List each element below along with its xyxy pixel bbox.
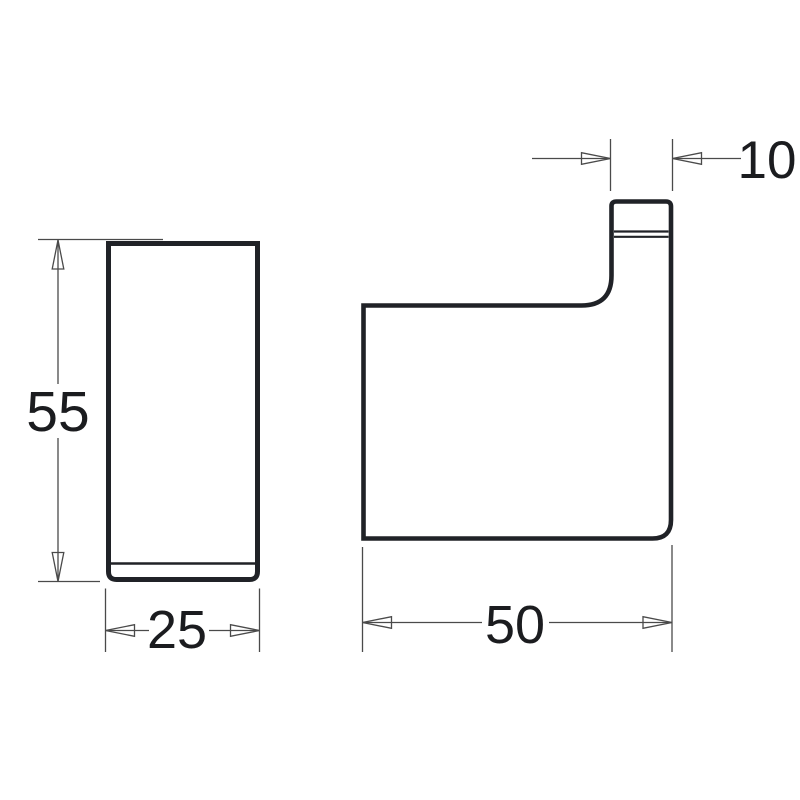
tip-dimension-label: 10 — [738, 131, 797, 190]
height-dimension-label: 55 — [26, 380, 89, 444]
side-view — [364, 202, 672, 539]
technical-drawing-canvas: 55 25 50 10 — [0, 0, 800, 800]
part-outlines — [109, 202, 672, 580]
depth-dimension-label: 50 — [485, 595, 545, 655]
tip-dimension-10 — [532, 139, 741, 191]
side-view-outline — [364, 202, 672, 539]
front-view — [109, 244, 258, 580]
width-dimension-label: 25 — [147, 600, 207, 660]
dimension-drawing-svg: 55 25 50 10 — [0, 0, 800, 800]
front-view-outline — [109, 244, 258, 580]
